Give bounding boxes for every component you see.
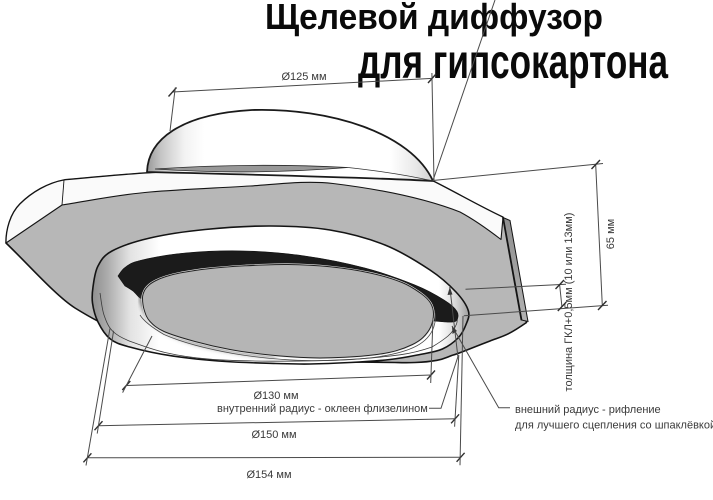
svg-text:Ø125 мм: Ø125 мм (281, 71, 326, 83)
svg-text:65 мм: 65 мм (605, 219, 617, 249)
svg-text:Щелевой диффузор: Щелевой диффузор (265, 0, 603, 37)
svg-text:толщина ГКЛ+0,5мм (10 или 13мм: толщина ГКЛ+0,5мм (10 или 13мм) (563, 213, 575, 392)
svg-text:внутренний радиус - оклеен фли: внутренний радиус - оклеен флизелином (217, 403, 428, 415)
svg-text:для лучшего сцепления со шпакл: для лучшего сцепления со шпаклёвкой (515, 420, 713, 432)
svg-text:Ø130 мм: Ø130 мм (253, 390, 298, 402)
svg-text:внешний радиус - рифление: внешний радиус - рифление (515, 404, 661, 416)
svg-text:для гипсокартона: для гипсокартона (358, 36, 668, 89)
svg-text:Ø150 мм: Ø150 мм (251, 429, 296, 441)
svg-text:Ø154 мм: Ø154 мм (246, 469, 291, 481)
